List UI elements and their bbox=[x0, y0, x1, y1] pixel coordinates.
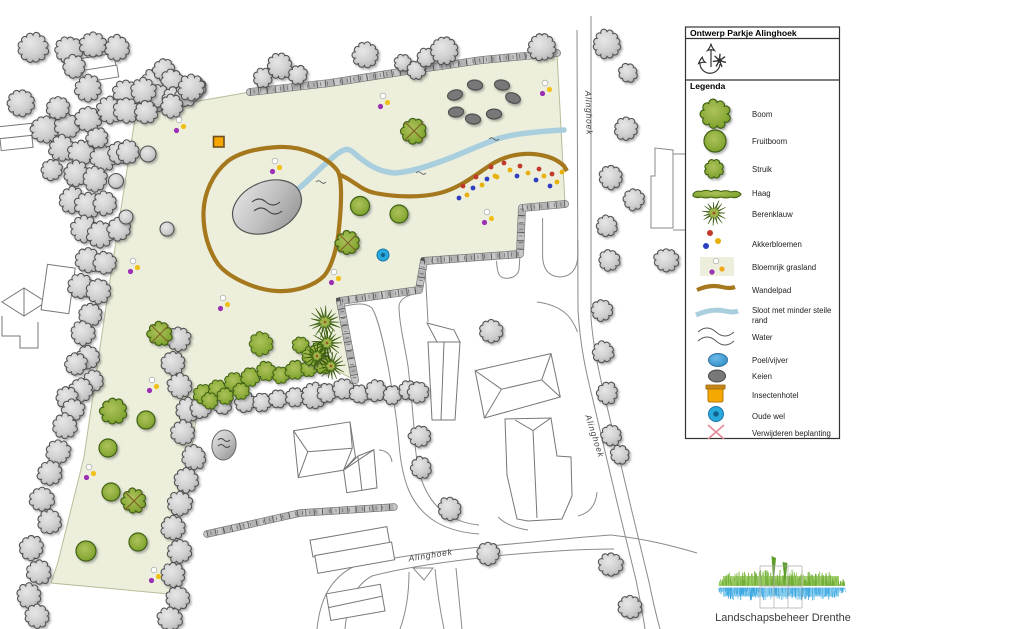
svg-text:Water: Water bbox=[752, 333, 773, 342]
svg-text:Oude wel: Oude wel bbox=[752, 412, 785, 421]
svg-text:Bloemrijk grasland: Bloemrijk grasland bbox=[752, 263, 816, 272]
svg-text:Sloot met minder steile: Sloot met minder steile bbox=[752, 306, 831, 315]
svg-text:Insectenhotel: Insectenhotel bbox=[752, 391, 799, 400]
svg-text:Verwijderen beplanting: Verwijderen beplanting bbox=[752, 429, 831, 438]
svg-text:Struik: Struik bbox=[752, 165, 772, 174]
svg-text:Wandelpad: Wandelpad bbox=[752, 286, 791, 295]
svg-text:Haag: Haag bbox=[752, 189, 771, 198]
svg-text:Legenda: Legenda bbox=[690, 81, 726, 91]
svg-text:Boom: Boom bbox=[752, 110, 772, 119]
svg-text:rand: rand bbox=[752, 316, 768, 325]
svg-text:Alinghoek: Alinghoek bbox=[583, 89, 595, 135]
svg-text:Fruitboom: Fruitboom bbox=[752, 137, 787, 146]
svg-text:Berenklauw: Berenklauw bbox=[752, 210, 793, 219]
svg-text:Landschapsbeheer Drenthe: Landschapsbeheer Drenthe bbox=[715, 612, 851, 624]
svg-text:Keien: Keien bbox=[752, 372, 772, 381]
svg-text:Poel/vijver: Poel/vijver bbox=[752, 356, 788, 365]
svg-text:Ontwerp Parkje Alinghoek: Ontwerp Parkje Alinghoek bbox=[690, 28, 797, 38]
svg-text:Akkerbloemen: Akkerbloemen bbox=[752, 240, 802, 249]
